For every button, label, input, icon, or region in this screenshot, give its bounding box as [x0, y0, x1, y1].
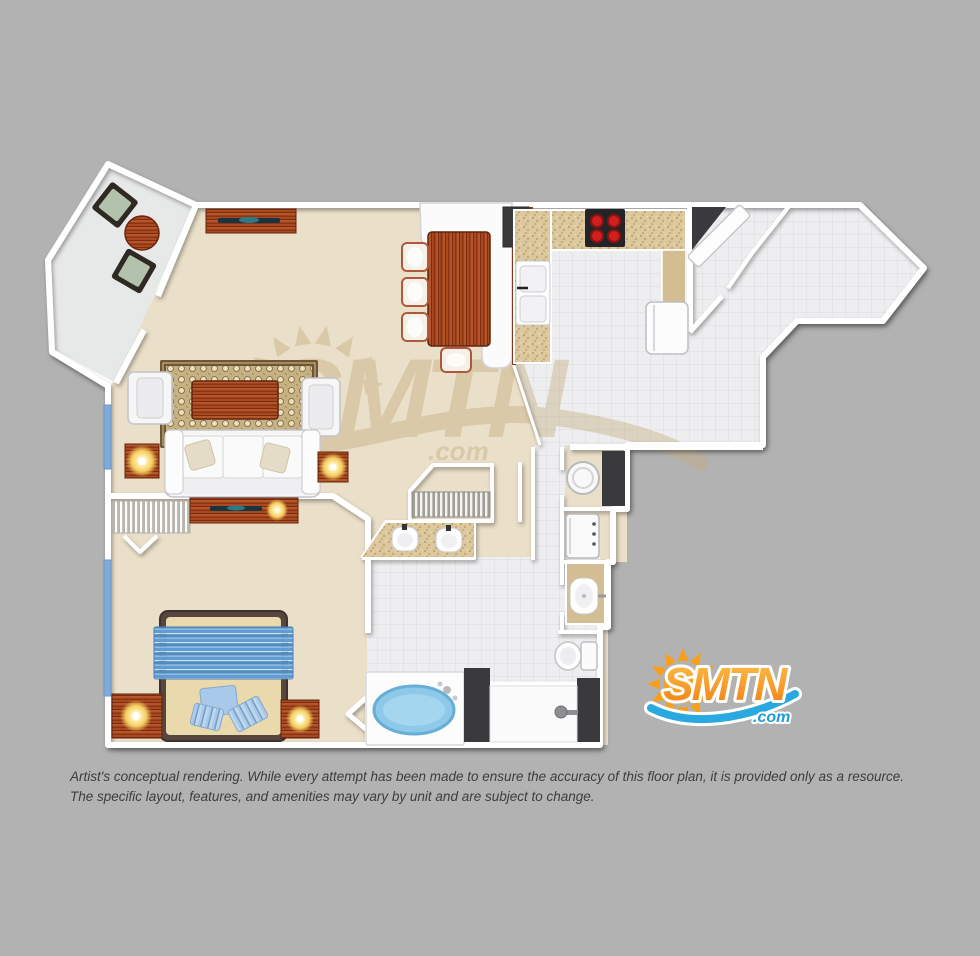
end-table-lamp — [318, 452, 348, 482]
media-console — [206, 209, 296, 233]
nightstand-lamp — [112, 694, 162, 738]
shower-partition — [577, 678, 600, 742]
coffee-table — [192, 381, 278, 419]
patio-table — [125, 216, 159, 250]
floor-plan-canvas: SMTN .com — [0, 0, 980, 956]
armchair — [128, 372, 172, 424]
disclaimer-line1: Artist's conceptual rendering. While eve… — [70, 767, 940, 787]
entry-tile-floor — [690, 208, 920, 443]
end-table-lamp — [125, 444, 159, 478]
bed-blanket — [154, 627, 293, 679]
shower-partition — [464, 668, 490, 742]
dining-chair — [402, 278, 428, 306]
washer — [567, 462, 599, 494]
throw-pillow — [259, 442, 291, 474]
shower-head — [555, 706, 567, 718]
dryer — [566, 514, 599, 558]
bifold-closet — [112, 501, 190, 533]
dining-table — [428, 232, 490, 346]
walk-in-closet — [412, 492, 490, 517]
refrigerator — [646, 302, 688, 354]
disclaimer-line2: The specific layout, features, and ameni… — [70, 787, 940, 807]
bed — [154, 611, 293, 741]
logo-text: SMTN — [663, 658, 788, 710]
closet-rod — [412, 492, 490, 517]
laundry-counter — [602, 451, 625, 506]
window — [104, 560, 111, 696]
watermark-suffix: .com — [428, 436, 489, 466]
range-cooktop — [585, 209, 625, 247]
smtn-logo: SMTN .com — [647, 648, 795, 726]
shower — [490, 686, 578, 742]
dresser-tv — [190, 498, 298, 523]
kitchen-sink — [516, 261, 550, 325]
dining-chair — [402, 313, 428, 341]
floor-plan-page: SMTN .com — [0, 0, 980, 956]
dining-chair — [402, 243, 428, 271]
sofa — [165, 430, 320, 497]
armchair — [302, 378, 340, 436]
utility-sink — [566, 563, 606, 624]
window — [104, 405, 111, 469]
logo-suffix: .com — [753, 709, 790, 726]
jacuzzi-tub — [366, 672, 464, 745]
disclaimer: Artist's conceptual rendering. While eve… — [70, 767, 940, 806]
lamp-glow — [266, 499, 288, 521]
dining-chair — [441, 348, 471, 372]
nightstand-lamp — [281, 700, 319, 738]
toilet — [555, 642, 597, 670]
